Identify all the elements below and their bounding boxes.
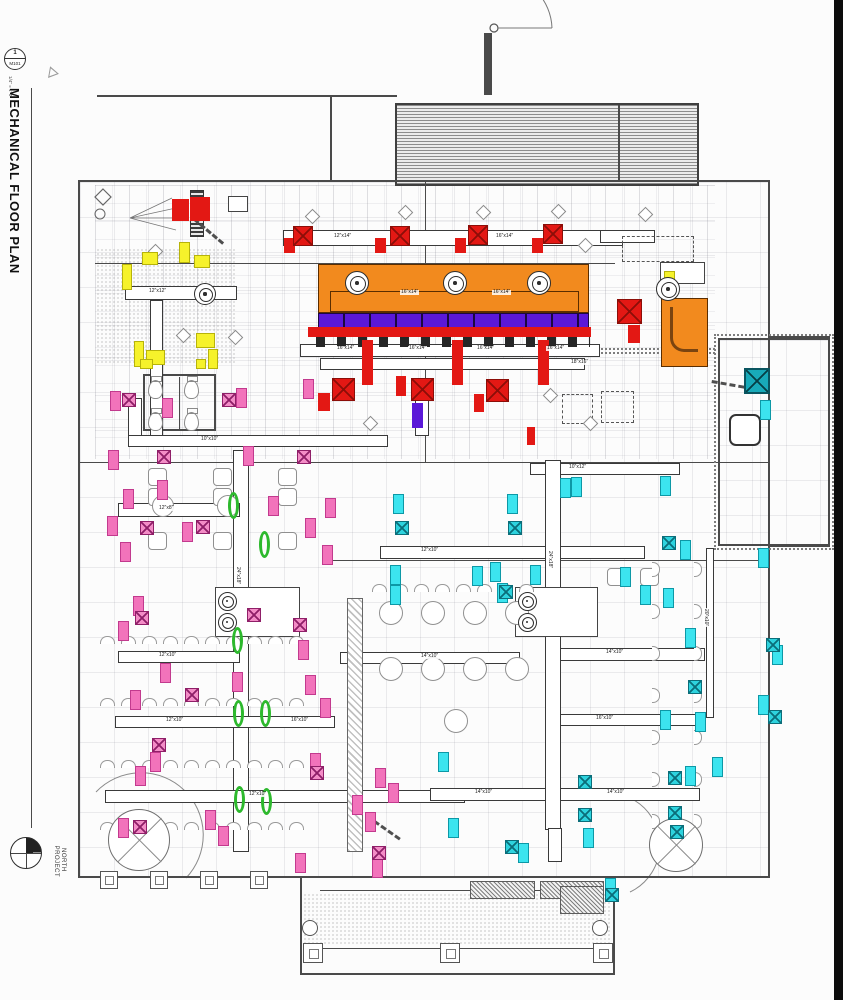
supply-tag-pink <box>243 446 254 466</box>
duct-size-label: 16″x14″ <box>408 346 427 351</box>
supply-diffuser-pink <box>222 393 236 407</box>
dining-seat <box>163 698 178 706</box>
fan-symbol <box>518 613 537 632</box>
supply-tag-pink <box>365 812 376 832</box>
column-square <box>200 871 218 889</box>
supply-diffuser-pink <box>157 450 171 464</box>
supply-diffuser-cyan <box>505 840 519 854</box>
fan-symbol <box>345 271 369 295</box>
exhaust-highlight <box>362 340 373 385</box>
exhaust-highlight <box>318 393 330 411</box>
supply-tag-cyan <box>390 585 401 605</box>
tag-yellow <box>208 349 218 369</box>
booth-seat <box>278 468 297 486</box>
exhaust-highlight <box>172 199 189 221</box>
duct-size-label: 24″x18″ <box>235 566 240 585</box>
dining-seat <box>268 636 283 644</box>
supply-tag-pink <box>150 752 161 772</box>
round-table <box>444 709 468 733</box>
exhaust-highlight <box>474 394 484 412</box>
duct-highlight-green <box>228 492 239 519</box>
duct-highlight-green <box>234 786 245 813</box>
planter-hatch <box>470 881 535 899</box>
supply-tag-pink <box>107 516 118 536</box>
duct-highlight-purple <box>412 403 423 428</box>
booth-seat <box>213 532 232 550</box>
wall-line <box>300 973 615 975</box>
ceiling-diffuser-teal <box>744 368 770 394</box>
planter-hatch <box>560 886 604 914</box>
supply-tag-cyan <box>640 585 651 605</box>
supply-tag-cyan <box>448 818 459 838</box>
exhaust-highlight <box>308 327 591 337</box>
supply-tag-cyan <box>390 565 401 585</box>
round-table <box>463 601 487 625</box>
supply-tag-cyan <box>620 567 631 587</box>
supply-diffuser-cyan <box>578 775 592 789</box>
duct-size-label: 10″x10″ <box>200 437 219 442</box>
supply-diffuser-cyan <box>499 585 513 599</box>
supply-diffuser-pink <box>293 618 307 632</box>
column-round <box>302 920 318 936</box>
round-table <box>421 657 445 681</box>
duct-size-label: 10″x12″ <box>568 465 587 470</box>
duct-size-label: 16″x14″ <box>546 346 565 351</box>
fan-symbol <box>218 613 237 632</box>
supply-diffuser-cyan <box>768 710 782 724</box>
exhaust-highlight <box>628 325 640 343</box>
dining-seat <box>456 584 471 592</box>
supply-tag-pink <box>162 398 173 418</box>
scan-edge-strip <box>834 0 843 1000</box>
wall-line <box>31 88 32 828</box>
toilet-fixture <box>184 412 199 431</box>
exhaust-diffuser-highlight <box>617 299 642 324</box>
hood-plenum-purple-band <box>318 313 589 328</box>
dining-seat <box>205 636 220 644</box>
booth-seat <box>278 488 297 506</box>
supply-tag-pink <box>236 388 247 408</box>
supply-diffuser-pink <box>297 450 311 464</box>
dining-seat <box>268 698 283 706</box>
exhaust-diffuser-highlight <box>543 224 563 244</box>
duct-size-label: 12″x10″ <box>158 653 177 658</box>
roof-louver-hatch <box>395 103 699 186</box>
duct-size-label: 14″x10″ <box>474 790 493 795</box>
duct-size-label: 12″x8″ <box>158 506 174 511</box>
round-table <box>463 657 487 681</box>
supply-tag-pink <box>372 858 383 878</box>
tag-yellow <box>140 359 153 369</box>
dining-seat <box>414 584 429 592</box>
duct-run <box>545 648 705 661</box>
dining-seat <box>100 636 115 644</box>
dining-seat <box>184 760 199 768</box>
duct-run <box>706 548 714 718</box>
dining-seat <box>100 698 115 706</box>
duct-size-label: 12″x10″ <box>420 548 439 553</box>
dining-seat <box>289 760 304 768</box>
duct-highlight-green <box>232 627 243 654</box>
paving-stipple <box>96 248 236 363</box>
duct-size-label: 16″x14″ <box>336 346 355 351</box>
duct-size-label: 18″x16″ <box>570 360 589 365</box>
supply-tag-cyan <box>438 752 449 772</box>
supply-tag-pink <box>232 672 243 692</box>
supply-diffuser-pink <box>152 738 166 752</box>
dining-seat <box>247 822 262 830</box>
fan-symbol <box>656 277 680 301</box>
supply-tag-pink <box>218 826 229 846</box>
duct-run <box>430 788 700 801</box>
supply-tag-pink <box>160 663 171 683</box>
supply-tag-cyan <box>530 565 541 585</box>
duct-run <box>128 435 388 447</box>
duct-run <box>545 714 705 726</box>
supply-diffuser-cyan <box>688 680 702 694</box>
dining-seat <box>268 760 283 768</box>
floor-plan-canvas: 1 M101 1/4" = 1'-0" MECHANICAL FLOOR PLA… <box>0 0 843 1000</box>
duct-size-label: 16″x14″ <box>400 290 419 295</box>
equipment-box <box>228 196 248 212</box>
supply-tag-cyan <box>685 628 696 648</box>
dining-seat <box>205 760 220 768</box>
exhaust-highlight <box>527 427 535 445</box>
supply-tag-pink <box>295 853 306 873</box>
supply-tag-pink <box>182 522 193 542</box>
equipment-dashed-box <box>622 236 694 262</box>
toilet-fixture <box>148 412 163 431</box>
exhaust-highlight <box>396 376 406 396</box>
supply-tag-pink <box>388 783 399 803</box>
supply-tag-pink <box>130 690 141 710</box>
supply-tag-pink <box>305 518 316 538</box>
supply-tag-cyan <box>571 477 582 497</box>
fan-symbol <box>518 592 537 611</box>
duct-size-label: 14″x10″ <box>605 650 624 655</box>
supply-tag-cyan <box>695 712 706 732</box>
duct-size-label: 20″x10″ <box>703 608 708 627</box>
tag-yellow <box>179 242 190 263</box>
supply-tag-pink <box>352 795 363 815</box>
tag-yellow <box>194 255 210 268</box>
supply-tag-pink <box>205 810 216 830</box>
duct-size-label: 14″x10″ <box>606 790 625 795</box>
exhaust-diffuser-highlight <box>468 225 488 245</box>
supply-tag-cyan <box>760 400 771 420</box>
supply-diffuser-cyan <box>766 638 780 652</box>
equipment-unit <box>729 414 761 446</box>
exhaust-diffuser-highlight <box>293 226 313 246</box>
dining-seat <box>247 760 262 768</box>
supply-tag-pink <box>120 542 131 562</box>
duct-run <box>118 651 240 663</box>
toilet-fixture <box>184 380 199 399</box>
supply-diffuser-cyan <box>508 521 522 535</box>
column-square <box>303 943 323 963</box>
duct-run <box>105 790 465 803</box>
wall-line <box>78 180 770 182</box>
supply-diffuser-pink <box>140 521 154 535</box>
duct-size-label: 24″x18″ <box>547 550 552 569</box>
tag-yellow <box>142 252 158 265</box>
column-round <box>592 920 608 936</box>
supply-tag-cyan <box>685 766 696 786</box>
supply-diffuser-pink <box>185 688 199 702</box>
fan-symbol <box>527 271 551 295</box>
wall-line <box>78 180 80 878</box>
wall-line <box>214 374 216 431</box>
exhaust-diffuser-highlight <box>332 378 355 401</box>
equipment-dashed-box <box>601 391 634 423</box>
tag-yellow <box>196 333 215 348</box>
exhaust-highlight <box>375 238 386 253</box>
supply-tag-cyan <box>663 588 674 608</box>
supply-tag-cyan <box>507 494 518 514</box>
dining-seat <box>372 584 387 592</box>
supply-tag-pink <box>325 498 336 518</box>
exhaust-highlight <box>452 340 463 385</box>
round-table <box>505 657 529 681</box>
dining-seat <box>163 760 178 768</box>
supply-tag-cyan <box>660 476 671 496</box>
supply-tag-cyan <box>583 828 594 848</box>
supply-tag-pink <box>135 766 146 786</box>
dining-seat <box>142 698 157 706</box>
supply-tag-cyan <box>490 562 501 582</box>
mechanical-floor-plan-sheet: { "sidebar": { "detail_number": "1", "sh… <box>0 0 843 1000</box>
duct-size-label: 12″x14″ <box>333 234 352 239</box>
duct-size-label: 14″x10″ <box>420 654 439 659</box>
duct-highlight-green <box>260 700 271 727</box>
wall-line <box>78 876 770 878</box>
supply-tag-cyan <box>472 566 483 586</box>
dining-seat <box>247 636 262 644</box>
duct-run <box>125 286 237 300</box>
round-table <box>379 657 403 681</box>
supply-diffuser-pink <box>310 766 324 780</box>
roof-hatch-divider <box>618 105 620 180</box>
exhaust-diffuser-highlight <box>390 226 410 246</box>
column-square <box>440 943 460 963</box>
supply-tag-cyan <box>680 540 691 560</box>
round-table <box>421 601 445 625</box>
supply-diffuser-pink <box>247 608 261 622</box>
supply-tag-cyan <box>393 494 404 514</box>
supply-diffuser-cyan <box>395 521 409 535</box>
wall-line <box>330 97 332 182</box>
booth-seat <box>213 468 232 486</box>
duct-run <box>545 460 561 830</box>
supply-tag-pink <box>157 480 168 500</box>
dining-seat <box>100 760 115 768</box>
duct-size-label: 16″x10″ <box>290 718 309 723</box>
supply-tag-pink <box>123 489 134 509</box>
supply-tag-pink <box>268 496 279 516</box>
duct-highlight-green <box>233 700 244 727</box>
exhaust-elbow-highlight <box>661 298 708 367</box>
exhaust-highlight <box>455 238 466 253</box>
dining-seat <box>205 698 220 706</box>
supply-tag-pink <box>298 640 309 660</box>
supply-tag-pink <box>322 545 333 565</box>
supply-tag-pink <box>305 675 316 695</box>
supply-diffuser-pink <box>133 820 147 834</box>
duct-size-label: 16″x14″ <box>495 234 514 239</box>
toilet-fixture <box>148 380 163 399</box>
supply-tag-pink <box>118 621 129 641</box>
supply-tag-pink <box>375 768 386 788</box>
duct-size-label: 12″x10″ <box>165 718 184 723</box>
tag-yellow <box>196 359 206 369</box>
dining-seat <box>289 698 304 706</box>
supply-diffuser-pink <box>196 520 210 534</box>
column-square <box>150 871 168 889</box>
supply-diffuser-cyan <box>670 825 684 839</box>
wall-line <box>143 374 145 431</box>
supply-tag-pink <box>108 450 119 470</box>
wall-line <box>179 377 180 430</box>
supply-diffuser-pink <box>135 611 149 625</box>
wall-line <box>484 33 492 95</box>
supply-diffuser-pink <box>122 393 136 407</box>
supply-diffuser-cyan <box>605 888 619 902</box>
dining-seat <box>226 760 241 768</box>
exhaust-diffuser-highlight <box>411 378 434 401</box>
supply-tag-pink <box>303 379 314 399</box>
supply-tag-cyan <box>660 710 671 730</box>
dining-seat <box>184 636 199 644</box>
dining-seat <box>247 698 262 706</box>
wall-line <box>97 95 397 97</box>
exhaust-diffuser-highlight <box>486 379 509 402</box>
booth-seat <box>278 532 297 550</box>
supply-tag-pink <box>110 391 121 411</box>
dining-seat <box>268 822 283 830</box>
fan-symbol <box>443 271 467 295</box>
fan-symbol <box>194 283 216 305</box>
supply-diffuser-cyan <box>578 808 592 822</box>
exhaust-highlight <box>190 197 210 221</box>
duct-run <box>548 828 562 862</box>
duct-highlight-green <box>259 531 270 558</box>
dining-seat <box>435 584 450 592</box>
duct-size-label: 12″x10″ <box>248 792 267 797</box>
supply-tag-cyan <box>560 478 571 498</box>
supply-tag-cyan <box>758 548 769 568</box>
dining-seat <box>163 636 178 644</box>
fan-symbol <box>218 592 237 611</box>
supply-tag-pink <box>118 818 129 838</box>
dining-seat <box>289 822 304 830</box>
duct-size-label: 16″x14″ <box>492 290 511 295</box>
dining-seat <box>142 636 157 644</box>
dining-seat <box>519 584 534 592</box>
duct-size-label: 12″x12″ <box>148 289 167 294</box>
duct-size-label: 16″x10″ <box>595 716 614 721</box>
tag-yellow <box>122 264 132 290</box>
supply-diffuser-cyan <box>668 771 682 785</box>
supply-diffuser-cyan <box>668 806 682 820</box>
column-square <box>593 943 613 963</box>
column-square <box>100 871 118 889</box>
supply-diffuser-pink <box>372 846 386 860</box>
supply-tag-cyan <box>518 843 529 863</box>
column-square <box>250 871 268 889</box>
supply-diffuser-cyan <box>662 536 676 550</box>
dining-seat <box>184 822 199 830</box>
dining-seat <box>121 760 136 768</box>
exhaust-highlight <box>532 238 543 253</box>
supply-tag-cyan <box>712 757 723 777</box>
duct-size-label: 16″x14″ <box>476 346 495 351</box>
supply-tag-pink <box>320 698 331 718</box>
